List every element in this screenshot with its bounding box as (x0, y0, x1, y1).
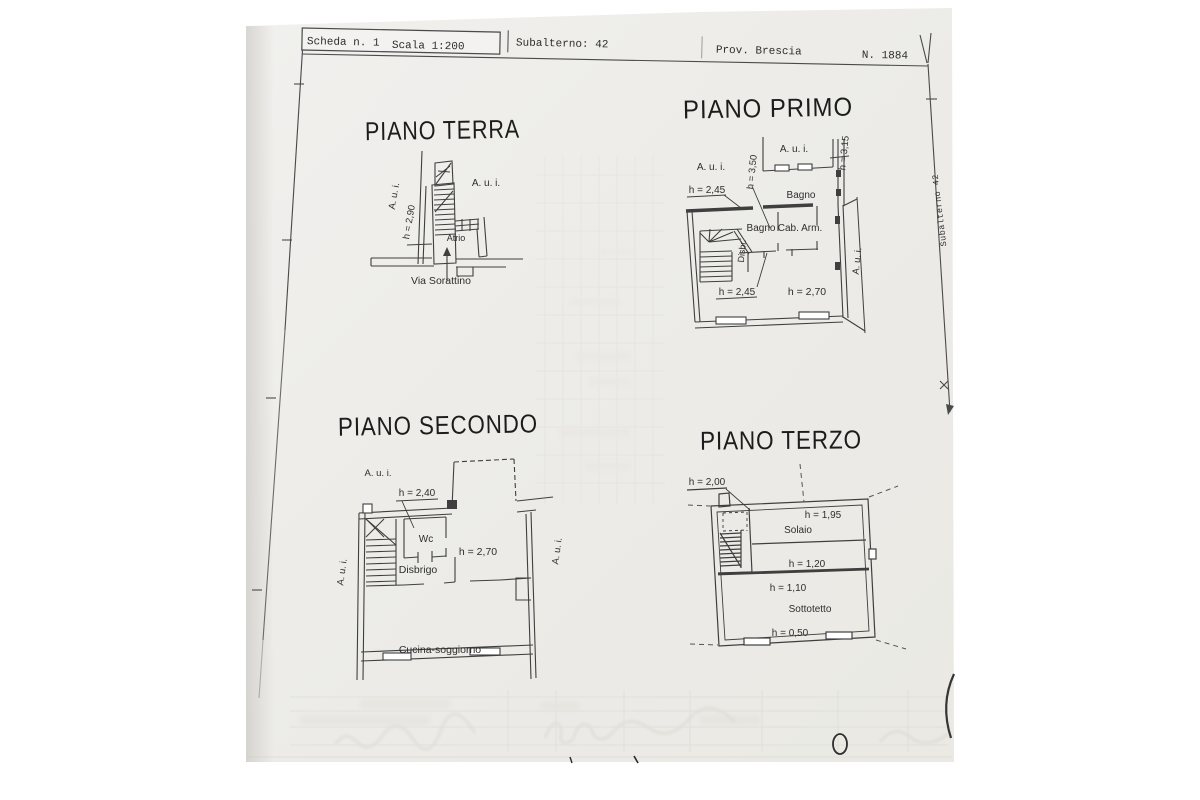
primo-label-cab-arm: Cab. Arm. (778, 223, 822, 234)
primo-label-bagno-mid: Bagno (747, 223, 776, 234)
terzo-label-h050: h = 0,50 (772, 628, 809, 639)
header-provincia: Prov. Brescia (716, 45, 802, 59)
terra-label-aui-right: A. u. i. (472, 178, 500, 189)
secondo-label-aui-top: A. u. i. (365, 468, 392, 479)
secondo-label-disbrigo: Disbrigo (399, 564, 438, 576)
piano-secondo-title: PIANO SECONDO (338, 408, 538, 441)
primo-label-h245-bottom: h = 2,45 (719, 287, 756, 298)
header-scheda: Scheda n. 1 (307, 36, 380, 50)
floorplan-svg: Subalterno 42 Scheda n. 1 Scala 1:200 Su… (0, 0, 1200, 800)
header-numero: N. 1884 (862, 50, 909, 63)
primo-label-aui-left: A. u. i. (697, 162, 725, 173)
primo-label-aui-top: A. u. i. (780, 144, 808, 155)
terzo-label-solaio: Solaio (784, 525, 812, 536)
piano-primo-title: PIANO PRIMO (683, 92, 853, 125)
scanned-floorplan-sheet: Subalterno 42 Scheda n. 1 Scala 1:200 Su… (0, 0, 1200, 800)
primo-label-h270: h = 2,70 (788, 286, 826, 298)
piano-terzo-title: PIANO TERZO (700, 424, 862, 455)
terzo-label-h200: h = 2,00 (689, 477, 726, 488)
terzo-label-h110: h = 1,10 (770, 583, 807, 594)
secondo-label-wc: Wc (419, 534, 433, 545)
terra-label-street: Via Sorattino (411, 275, 471, 287)
terzo-label-h195: h = 1,95 (805, 510, 842, 521)
terzo-label-h120: h = 1,20 (789, 559, 826, 570)
terra-label-atrio: Atrio (447, 233, 466, 243)
terzo-label-sottotetto: Sottotetto (789, 604, 832, 615)
primo-label-h245-top: h = 2,45 (689, 185, 726, 196)
secondo-label-h240: h = 2,40 (399, 488, 436, 499)
primo-label-bagno-top: Bagno (787, 190, 816, 201)
secondo-label-cucina: Cucina-soggiorno (399, 644, 481, 656)
header-subalterno: Subalterno: 42 (516, 37, 609, 51)
piano-terra-title: PIANO TERRA (365, 114, 520, 147)
secondo-label-h270: h = 2,70 (459, 546, 497, 558)
header-scala: Scala 1:200 (392, 40, 465, 54)
